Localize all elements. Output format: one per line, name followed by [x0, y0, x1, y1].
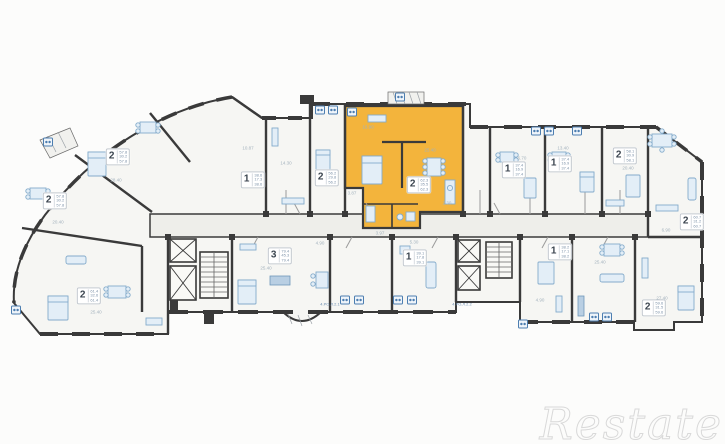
unit-areas: 62.335.562.3: [418, 178, 428, 191]
dimension-text: 3.87: [348, 191, 357, 196]
unit-room-count: 1: [505, 163, 514, 176]
unit-areas: 38.617.338.6: [252, 173, 262, 186]
unit-areas: 37.416.937.4: [559, 157, 569, 170]
unit-room-count: 1: [551, 245, 560, 258]
unit-areas: 60.731.260.7: [691, 215, 701, 228]
unit-room-count: 1: [406, 251, 415, 264]
unit-room-count: 2: [683, 215, 692, 228]
dimension-text: 28.40: [110, 178, 121, 183]
unit-label[interactable]: 2 61.432.661.4: [77, 287, 101, 304]
unit-room-count: 2: [46, 194, 55, 207]
dimension-text: 3.97: [376, 231, 385, 236]
unit-label[interactable]: 2 59.631.559.6: [642, 299, 666, 316]
unit-label[interactable]: 1 37.416.937.4: [502, 161, 526, 178]
unit-areas: 61.432.661.4: [88, 289, 98, 302]
utility-icon: [518, 320, 528, 329]
utility-icon: [43, 138, 53, 147]
unit-room-count: 1: [551, 157, 560, 170]
unit-label-highlighted[interactable]: 2 62.335.562.3: [407, 176, 431, 193]
utility-icon: [572, 127, 582, 136]
unit-room-count: 2: [318, 171, 327, 184]
utility-icon: [315, 106, 325, 115]
unit-areas: 58.130.958.1: [624, 149, 634, 162]
unit-areas: 39.117.839.1: [414, 251, 424, 264]
dimension-text: 25.40: [260, 266, 271, 271]
utility-icon: [328, 106, 338, 115]
utility-icon: [347, 108, 357, 117]
utility-icon: [11, 306, 21, 315]
unit-areas: 79.445.379.4: [279, 249, 289, 262]
unit-areas: 37.416.937.4: [513, 163, 523, 176]
utility-icon: [340, 296, 350, 305]
watermark: Restate: [540, 399, 723, 444]
dimension-text: 25.40: [90, 310, 101, 315]
dimension-text: 20.40: [622, 166, 633, 171]
dimension-text: 6.90: [662, 228, 671, 233]
unit-room-count: 2: [616, 149, 625, 162]
dimension-text: 4.90: [316, 241, 325, 246]
unit-room-count: 3: [271, 249, 280, 262]
unit-areas: 56.229.856.2: [326, 171, 336, 184]
dimension-text: 25.40: [594, 260, 605, 265]
utility-icon: [531, 127, 541, 136]
unit-room-count: 2: [645, 301, 654, 314]
dimension-text: 4.90: [536, 298, 545, 303]
dimension-text: 2.30: [443, 201, 452, 206]
dimension-text: 25.40: [424, 148, 435, 153]
dimension-text: 13.40: [557, 146, 568, 151]
unit-areas: 38.217.138.2: [559, 245, 569, 258]
unit-room-count: 2: [410, 178, 419, 191]
dimension-text: 27.40: [656, 296, 667, 301]
utility-icon: [354, 296, 364, 305]
dimension-text: 5.30: [410, 240, 419, 245]
utility-icon: [407, 296, 417, 305]
dimension-text: 6.70: [518, 156, 527, 161]
floor-plan-page: Restate 2 57.830.257.8 2 57.830.257.8 2 …: [0, 0, 725, 444]
unit-label[interactable]: 2 58.130.958.1: [613, 147, 637, 164]
unit-room-count: 1: [244, 173, 253, 186]
annotation-overlay: Restate 2 57.830.257.8 2 57.830.257.8 2 …: [0, 0, 725, 444]
dimension-text: 14.30: [280, 161, 291, 166]
unit-label[interactable]: 1 39.117.839.1: [403, 249, 427, 266]
unit-label[interactable]: 1 37.416.937.4: [548, 155, 572, 172]
dimension-text: 16.90: [362, 125, 373, 130]
utility-icon: [544, 127, 554, 136]
unit-areas: 57.830.257.8: [117, 150, 127, 163]
unit-label[interactable]: 2 60.731.260.7: [680, 213, 704, 230]
utility-icon: [395, 93, 405, 102]
unit-label[interactable]: 1 38.617.338.6: [241, 171, 265, 188]
dimension-text: 10.87: [242, 146, 253, 151]
unit-areas: 59.631.559.6: [653, 301, 663, 314]
unit-areas: 57.830.257.8: [54, 194, 64, 207]
utility-icon: [393, 296, 403, 305]
unit-label[interactable]: 1 38.217.138.2: [548, 243, 572, 260]
unit-room-count: 2: [80, 289, 89, 302]
unit-room-count: 2: [109, 150, 118, 163]
corridor-code: 4.РО.Л.2.2: [452, 302, 471, 307]
dimension-text: 20.40: [52, 220, 63, 225]
corridor-code: 4.РО.Л.2.1: [320, 302, 339, 307]
unit-label[interactable]: 2 57.830.257.8: [43, 192, 67, 209]
utility-icon: [602, 313, 612, 322]
unit-label[interactable]: 2 56.229.856.2: [315, 169, 339, 186]
unit-label[interactable]: 3 79.445.379.4: [268, 247, 292, 264]
utility-icon: [589, 313, 599, 322]
unit-label[interactable]: 2 57.830.257.8: [106, 148, 130, 165]
